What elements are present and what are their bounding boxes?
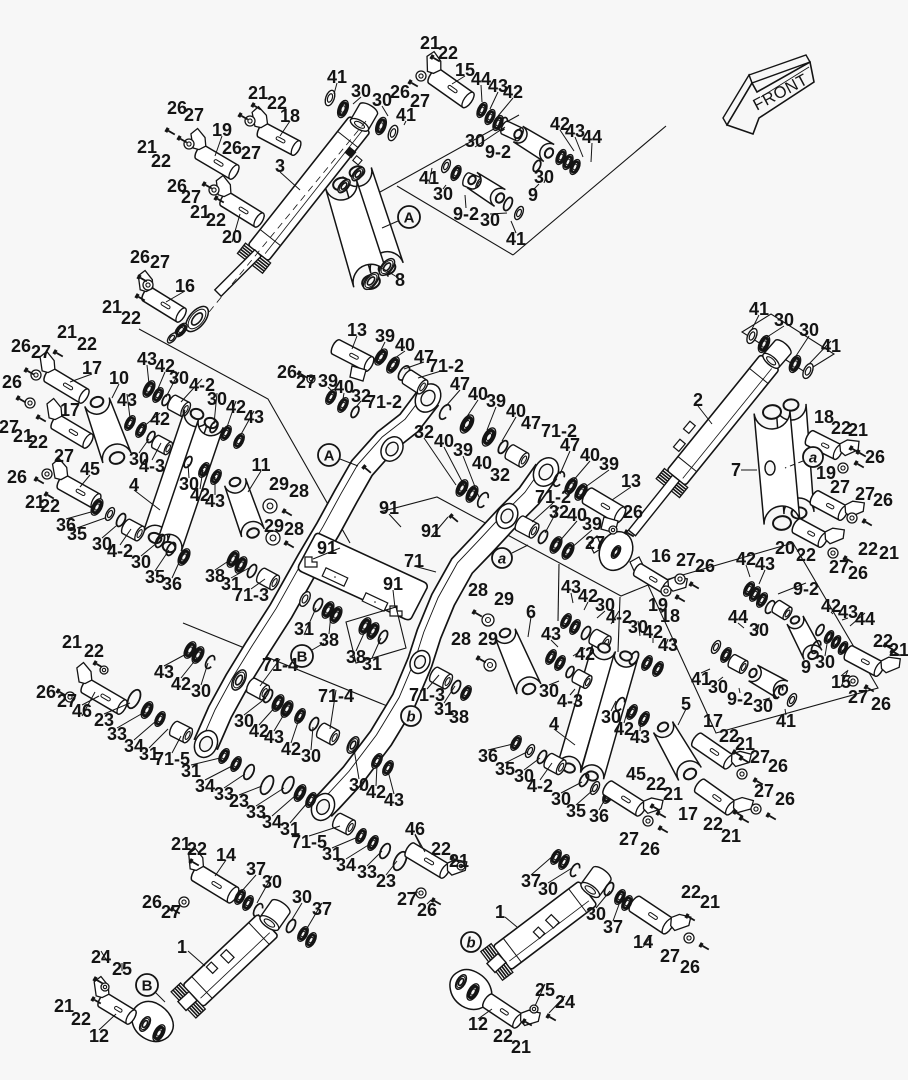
- svg-text:17: 17: [678, 804, 698, 824]
- svg-text:21: 21: [57, 322, 77, 342]
- svg-text:21: 21: [721, 826, 741, 846]
- svg-text:27: 27: [184, 105, 204, 125]
- svg-text:21: 21: [663, 784, 683, 804]
- svg-text:30: 30: [480, 210, 500, 230]
- svg-text:31: 31: [294, 619, 314, 639]
- svg-text:21: 21: [511, 1037, 531, 1057]
- svg-text:21: 21: [848, 420, 868, 440]
- svg-text:9: 9: [801, 657, 811, 677]
- svg-text:26: 26: [873, 490, 893, 510]
- svg-text:27: 27: [660, 946, 680, 966]
- svg-text:17: 17: [82, 358, 102, 378]
- svg-text:27: 27: [54, 446, 74, 466]
- svg-text:71-3: 71-3: [233, 585, 269, 605]
- svg-text:30: 30: [534, 167, 554, 187]
- svg-text:24: 24: [91, 947, 111, 967]
- svg-text:34: 34: [336, 855, 356, 875]
- svg-text:b: b: [466, 935, 475, 952]
- svg-text:26: 26: [768, 756, 788, 776]
- svg-text:27: 27: [676, 550, 696, 570]
- svg-text:44: 44: [728, 607, 748, 627]
- svg-text:45: 45: [626, 764, 646, 784]
- svg-text:26: 26: [680, 957, 700, 977]
- svg-text:A: A: [324, 448, 335, 465]
- svg-text:7: 7: [731, 460, 741, 480]
- svg-text:21: 21: [700, 892, 720, 912]
- svg-text:22: 22: [40, 496, 60, 516]
- svg-text:30: 30: [292, 887, 312, 907]
- svg-text:4: 4: [549, 714, 559, 734]
- svg-text:38: 38: [449, 707, 469, 727]
- svg-text:26: 26: [277, 362, 297, 382]
- svg-text:27: 27: [296, 372, 316, 392]
- svg-text:22: 22: [187, 839, 207, 859]
- svg-text:27: 27: [585, 533, 605, 553]
- svg-text:26: 26: [417, 900, 437, 920]
- svg-text:71-2: 71-2: [366, 392, 402, 412]
- svg-text:27: 27: [241, 143, 261, 163]
- svg-text:26: 26: [11, 336, 31, 356]
- svg-text:30: 30: [774, 310, 794, 330]
- svg-text:47: 47: [521, 413, 541, 433]
- svg-text:30: 30: [538, 879, 558, 899]
- svg-text:26: 26: [871, 694, 891, 714]
- svg-text:33: 33: [357, 862, 377, 882]
- svg-text:35: 35: [67, 524, 87, 544]
- svg-text:17: 17: [60, 400, 80, 420]
- svg-text:22: 22: [796, 545, 816, 565]
- svg-text:30: 30: [753, 696, 773, 716]
- svg-text:30: 30: [433, 184, 453, 204]
- svg-text:26: 26: [390, 82, 410, 102]
- svg-text:24: 24: [555, 992, 575, 1012]
- svg-text:28: 28: [468, 580, 488, 600]
- svg-text:30: 30: [207, 389, 227, 409]
- svg-text:4-3: 4-3: [557, 691, 583, 711]
- svg-text:A: A: [404, 210, 415, 227]
- svg-text:29: 29: [494, 589, 514, 609]
- svg-text:30: 30: [749, 620, 769, 640]
- svg-text:26: 26: [7, 467, 27, 487]
- svg-text:27: 27: [619, 829, 639, 849]
- svg-text:22: 22: [28, 432, 48, 452]
- svg-text:18: 18: [280, 106, 300, 126]
- svg-text:22: 22: [77, 334, 97, 354]
- svg-text:21: 21: [889, 640, 908, 660]
- svg-text:26: 26: [130, 247, 150, 267]
- svg-text:22: 22: [84, 641, 104, 661]
- svg-text:20: 20: [775, 538, 795, 558]
- svg-text:11: 11: [251, 455, 270, 475]
- svg-text:1: 1: [177, 937, 187, 957]
- svg-text:26: 26: [848, 563, 868, 583]
- svg-text:42: 42: [503, 82, 523, 102]
- svg-text:29: 29: [478, 629, 498, 649]
- svg-text:5: 5: [681, 694, 691, 714]
- svg-text:43: 43: [117, 390, 137, 410]
- svg-text:21: 21: [248, 83, 268, 103]
- svg-text:91: 91: [421, 521, 441, 541]
- svg-text:2: 2: [693, 390, 703, 410]
- svg-text:21: 21: [62, 632, 82, 652]
- svg-text:b: b: [406, 709, 415, 726]
- svg-text:45: 45: [80, 459, 100, 479]
- svg-text:26: 26: [142, 892, 162, 912]
- svg-text:40: 40: [395, 335, 415, 355]
- svg-text:22: 22: [858, 539, 878, 559]
- svg-text:35: 35: [566, 801, 586, 821]
- svg-text:91: 91: [317, 538, 337, 558]
- svg-text:37: 37: [312, 899, 332, 919]
- svg-text:4-2: 4-2: [527, 776, 553, 796]
- svg-text:16: 16: [175, 276, 195, 296]
- svg-text:39: 39: [582, 514, 602, 534]
- svg-text:30: 30: [351, 81, 371, 101]
- svg-text:32: 32: [490, 465, 510, 485]
- svg-text:22: 22: [121, 308, 141, 328]
- svg-text:29: 29: [269, 474, 289, 494]
- svg-text:26: 26: [640, 839, 660, 859]
- svg-text:28: 28: [284, 519, 304, 539]
- svg-text:43: 43: [541, 624, 561, 644]
- svg-text:16: 16: [651, 546, 671, 566]
- svg-text:12: 12: [468, 1014, 488, 1034]
- svg-text:26: 26: [36, 682, 56, 702]
- svg-text:34: 34: [195, 776, 215, 796]
- svg-text:28: 28: [289, 481, 309, 501]
- svg-text:20: 20: [222, 227, 242, 247]
- svg-text:27: 27: [150, 252, 170, 272]
- svg-text:3: 3: [275, 156, 285, 176]
- svg-text:14: 14: [633, 932, 653, 952]
- svg-text:32: 32: [414, 422, 434, 442]
- svg-text:22: 22: [151, 151, 171, 171]
- svg-text:14: 14: [216, 845, 236, 865]
- svg-text:12: 12: [89, 1026, 109, 1046]
- svg-text:9-2: 9-2: [793, 579, 819, 599]
- svg-text:27: 27: [848, 687, 868, 707]
- svg-text:39: 39: [599, 454, 619, 474]
- svg-text:30: 30: [465, 131, 485, 151]
- svg-text:28: 28: [451, 629, 471, 649]
- svg-text:26: 26: [222, 138, 242, 158]
- svg-text:43: 43: [658, 635, 678, 655]
- svg-text:26: 26: [2, 372, 22, 392]
- svg-text:30: 30: [372, 90, 392, 110]
- svg-text:a: a: [498, 551, 506, 568]
- svg-text:B: B: [142, 978, 153, 995]
- svg-text:27: 27: [754, 781, 774, 801]
- svg-text:26: 26: [695, 556, 715, 576]
- svg-text:22: 22: [681, 882, 701, 902]
- svg-text:27: 27: [829, 557, 849, 577]
- svg-text:42: 42: [575, 644, 595, 664]
- svg-text:4-2: 4-2: [107, 541, 133, 561]
- svg-text:21: 21: [102, 297, 122, 317]
- svg-text:71-4: 71-4: [318, 686, 354, 706]
- svg-text:27: 27: [31, 342, 51, 362]
- svg-text:42: 42: [171, 674, 191, 694]
- svg-text:26: 26: [865, 447, 885, 467]
- svg-text:35: 35: [495, 759, 515, 779]
- svg-text:9-2: 9-2: [485, 142, 511, 162]
- svg-text:41: 41: [821, 336, 841, 356]
- svg-text:30: 30: [708, 677, 728, 697]
- svg-text:21: 21: [449, 851, 469, 871]
- svg-text:26: 26: [623, 502, 643, 522]
- svg-text:8: 8: [395, 270, 405, 290]
- svg-text:91: 91: [379, 498, 399, 518]
- svg-text:4: 4: [129, 475, 139, 495]
- svg-text:21: 21: [879, 543, 899, 563]
- svg-text:25: 25: [535, 980, 555, 1000]
- svg-text:40: 40: [580, 445, 600, 465]
- svg-text:23: 23: [376, 871, 396, 891]
- svg-text:71-4: 71-4: [262, 655, 298, 675]
- svg-text:29: 29: [264, 516, 284, 536]
- svg-text:13: 13: [621, 471, 641, 491]
- svg-text:26: 26: [775, 789, 795, 809]
- svg-text:B: B: [297, 649, 308, 666]
- svg-text:27: 27: [830, 477, 850, 497]
- svg-text:27: 27: [161, 902, 181, 922]
- svg-text:30: 30: [799, 320, 819, 340]
- svg-text:9: 9: [528, 185, 538, 205]
- svg-text:1: 1: [495, 902, 505, 922]
